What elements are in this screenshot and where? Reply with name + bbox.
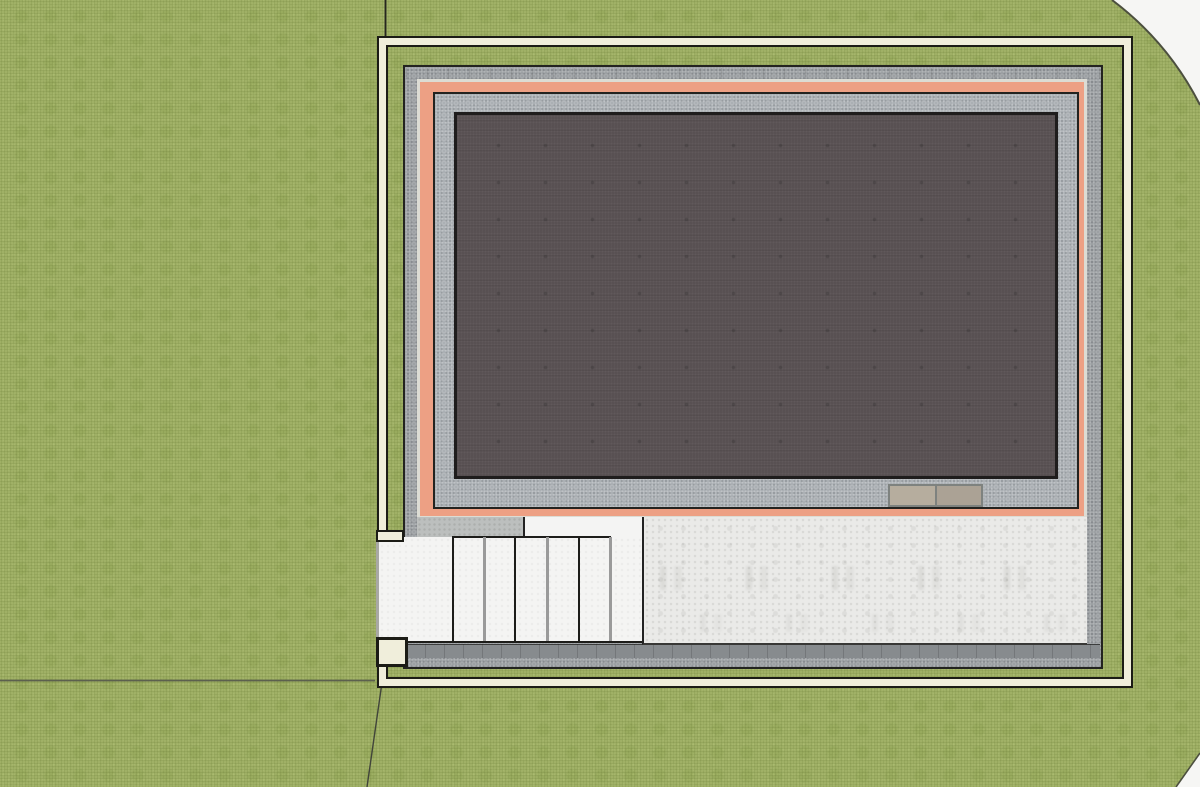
stair-step-edge: [483, 537, 486, 641]
doormat-tile-right: [937, 486, 982, 505]
roof-slab: [454, 112, 1058, 479]
fence-stub-top: [376, 530, 404, 542]
exterior-stairs: [376, 537, 642, 643]
wall-bottom-course: [406, 644, 1100, 658]
stair-step-edge: [578, 537, 580, 641]
stair-step-edge: [514, 537, 516, 641]
stair-step-edge: [609, 537, 612, 641]
fence-stub-bottom: [376, 637, 408, 667]
stair-step-edge: [546, 537, 549, 641]
stair-step-edge: [452, 537, 454, 641]
doormat-tile-left: [890, 486, 937, 505]
patio-texture-smudge: [700, 614, 1070, 632]
patio-texture-smudge: [660, 566, 1076, 590]
stair-top-edge: [452, 536, 611, 538]
doormat: [888, 484, 983, 507]
site-plan-viewport[interactable]: [0, 0, 1200, 787]
wall-masonry-joints-top: [406, 68, 1100, 79]
